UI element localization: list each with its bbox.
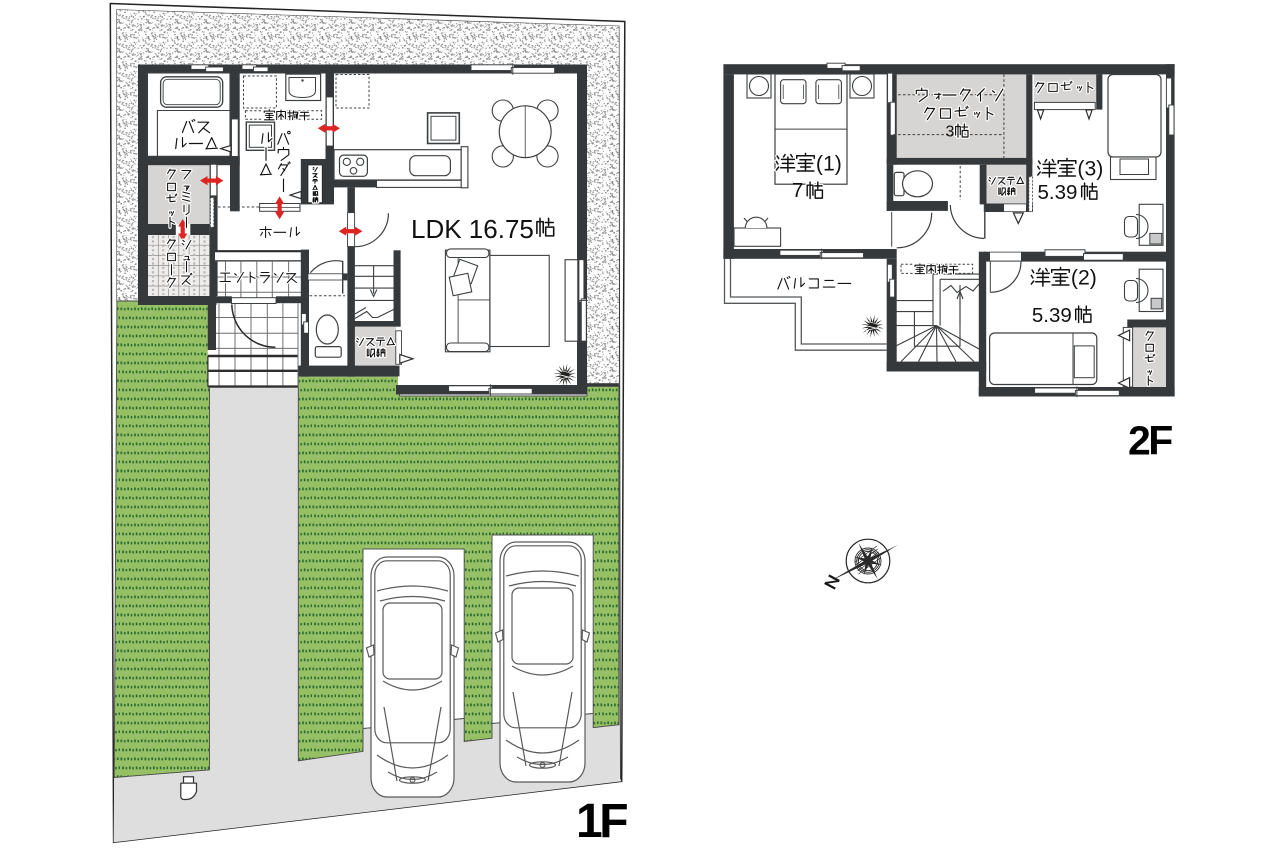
svg-text:LDK 16.75: LDK 16.75 [411,214,534,244]
svg-text:(3): (3) [1077,158,1103,181]
svg-text:(2): (2) [1071,267,1097,290]
svg-text:5.39: 5.39 [1032,304,1072,327]
svg-text:(1): (1) [816,153,842,176]
svg-text:2F: 2F [1128,418,1172,464]
svg-text:3: 3 [946,124,955,141]
svg-text:7: 7 [792,179,803,202]
svg-text:1F: 1F [576,795,627,848]
svg-text:5.39: 5.39 [1038,181,1078,204]
